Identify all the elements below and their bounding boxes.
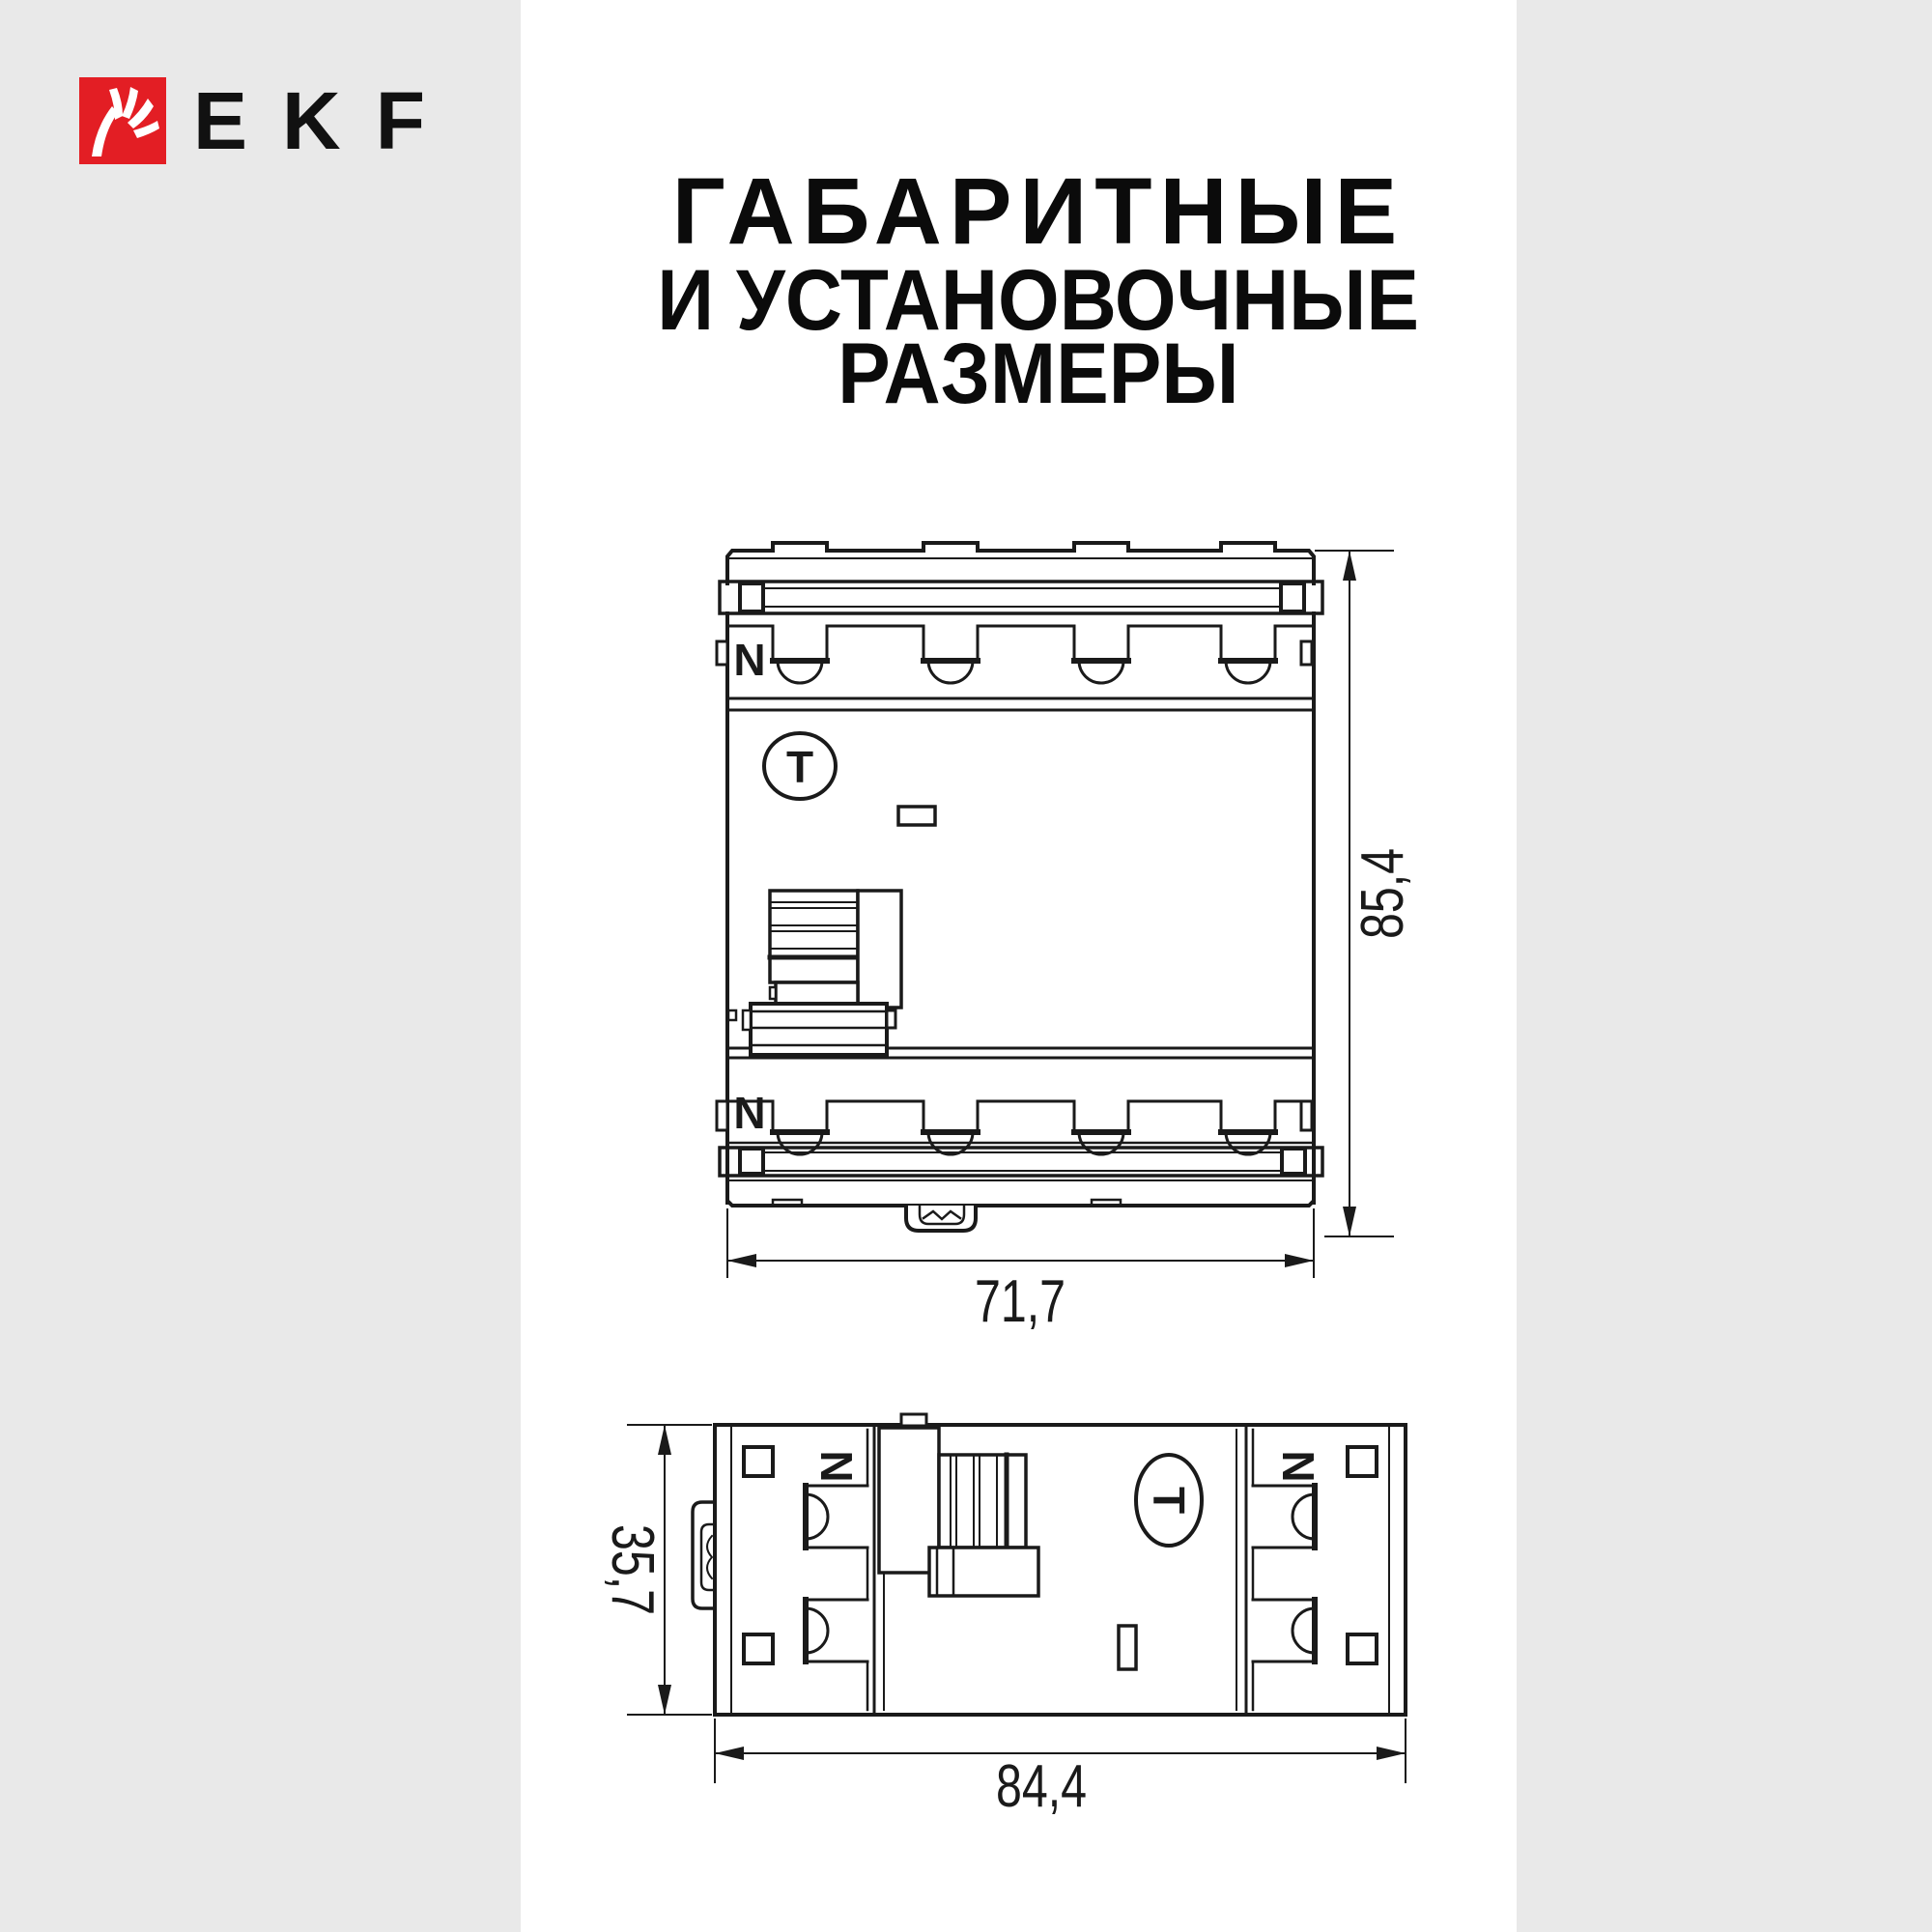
ekf-logo-icon [79,77,166,164]
ekf-logo-text: EKF [193,77,460,164]
bottom-label-test: T [1144,1487,1194,1514]
bottom-label-neutral-left: N [811,1450,862,1482]
label-test-button: T [786,742,813,792]
dimension-front-width-value: 71,7 [975,1267,1065,1334]
label-neutral-bottom: N [733,1088,765,1138]
dimension-front-height-value: 85,4 [1349,848,1415,939]
front-view-drawing: N N T 71,7 85,4 [580,522,1430,1352]
page-title-line-3: РАЗМЕРЫ [522,328,1555,418]
page-title-line-1: ГАБАРИТНЫЕ [522,162,1555,261]
dimension-side-depth-value: 35,7 [600,1524,667,1615]
label-neutral-top: N [733,635,765,685]
ekf-logo: EKF [79,77,460,164]
bottom-din-clip [693,1502,715,1608]
page-background: EKF ГАБАРИТНЫЕ И УСТАНОВОЧНЫЕ РАЗМЕРЫ [0,0,1932,1932]
dimension-side-width-value: 84,4 [996,1752,1087,1819]
bottom-view-drawing: N N T 35,7 84,4 [580,1391,1449,1821]
bottom-label-neutral-right: N [1273,1450,1323,1482]
